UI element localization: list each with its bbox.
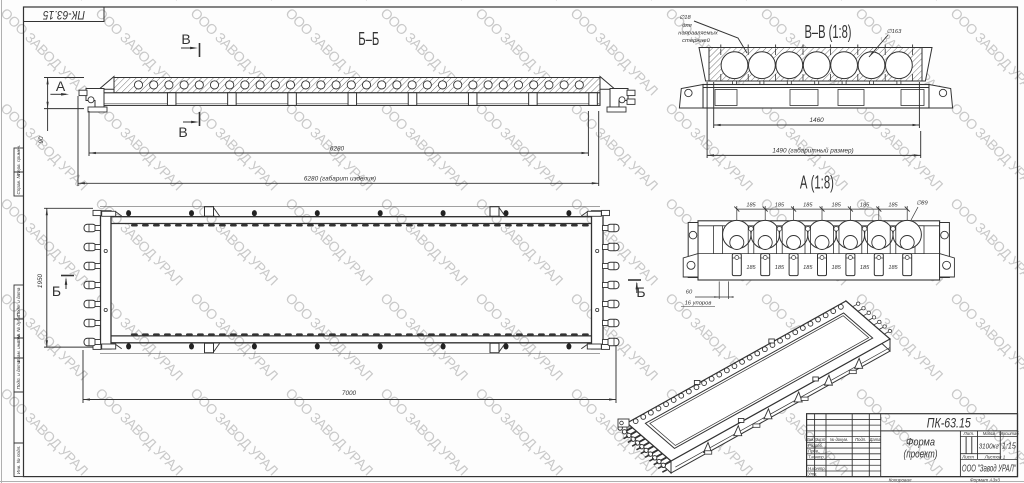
svg-text:∅18: ∅18 [679, 14, 691, 21]
svg-text:∅89: ∅89 [916, 200, 928, 207]
svg-text:ООО ЗАВОД УРАЛ: ООО ЗАВОД УРАЛ [473, 385, 567, 479]
svg-text:ООО ЗАВОД УРАЛ: ООО ЗАВОД УРАЛ [283, 0, 377, 3]
svg-text:ООО ЗАВОД УРАЛ: ООО ЗАВОД УРАЛ [663, 0, 757, 3]
svg-text:ООО ЗАВОД УРАЛ: ООО ЗАВОД УРАЛ [378, 0, 472, 3]
svg-text:185: 185 [860, 265, 870, 271]
svg-text:ООО ЗАВОД УРАЛ: ООО ЗАВОД УРАЛ [758, 0, 852, 3]
svg-text:185: 185 [888, 265, 898, 271]
svg-text:7000: 7000 [342, 390, 357, 397]
svg-text:Лист: Лист [814, 437, 826, 442]
svg-text:ООО ЗАВОД УРАЛ: ООО ЗАВОД УРАЛ [93, 385, 187, 479]
svg-text:(проект): (проект) [904, 449, 938, 461]
svg-text:ООО ЗАВОД УРАЛ: ООО ЗАВОД УРАЛ [378, 385, 472, 479]
svg-text:Лит.: Лит. [963, 431, 975, 436]
svg-text:Разраб.: Разраб. [808, 443, 823, 448]
svg-text:ООО "Завод УРАЛ": ООО "Завод УРАЛ" [962, 463, 1017, 475]
svg-text:60: 60 [686, 290, 693, 296]
svg-text:185: 185 [860, 202, 870, 208]
svg-text:ООО ЗАВОД УРАЛ: ООО ЗАВОД УРАЛ [473, 0, 567, 3]
svg-text:Б: Б [636, 284, 645, 300]
svg-text:ООО ЗАВОД УРАЛ: ООО ЗАВОД УРАЛ [93, 100, 187, 194]
svg-text:Листов 1: Листов 1 [984, 454, 1006, 459]
svg-text:Масштаб: Масштаб [999, 431, 1019, 436]
svg-text:ООО ЗАВОД УРАЛ: ООО ЗАВОД УРАЛ [188, 385, 282, 479]
svg-text:185: 185 [888, 202, 898, 208]
svg-text:90: 90 [38, 136, 45, 144]
svg-text:ООО ЗАВОД УРАЛ: ООО ЗАВОД УРАЛ [853, 385, 947, 479]
svg-text:Масса: Масса [983, 431, 996, 436]
svg-text:ООО ЗАВОД УРАЛ: ООО ЗАВОД УРАЛ [378, 195, 472, 289]
svg-text:ООО ЗАВОД УРАЛ: ООО ЗАВОД УРАЛ [948, 5, 1024, 99]
svg-text:Копировал: Копировал [889, 477, 912, 482]
svg-text:1460: 1460 [809, 117, 824, 124]
svg-text:185: 185 [775, 265, 785, 271]
svg-text:Н.контр.: Н.контр. [808, 466, 826, 471]
svg-text:ООО ЗАВОД УРАЛ: ООО ЗАВОД УРАЛ [948, 100, 1024, 194]
svg-text:Подп. и дата: Подп. и дата [16, 360, 21, 389]
svg-text:В–В (1:8): В–В (1:8) [805, 22, 852, 42]
svg-text:В: В [178, 124, 187, 140]
svg-text:ООО ЗАВОД УРАЛ: ООО ЗАВОД УРАЛ [948, 195, 1024, 289]
svg-text:1:15: 1:15 [1002, 442, 1016, 451]
svg-text:185: 185 [803, 265, 813, 271]
svg-text:стержней: стержней [682, 37, 711, 44]
svg-text:Подп.: Подп. [855, 437, 866, 442]
svg-text:ПК-63.15: ПК-63.15 [43, 8, 85, 22]
svg-text:1490 (габаритный размер): 1490 (габаритный размер) [772, 147, 853, 155]
svg-text:А (1:8): А (1:8) [800, 172, 834, 192]
svg-text:ООО ЗАВОД УРАЛ: ООО ЗАВОД УРАЛ [948, 290, 1024, 384]
svg-text:Пров.: Пров. [808, 449, 819, 454]
svg-text:Справ. №: Справ. № [16, 174, 21, 195]
svg-text:Подп. и дата: Подп. и дата [16, 287, 21, 316]
svg-text:Б: Б [52, 283, 61, 299]
svg-text:направляемых: направляемых [678, 31, 719, 37]
svg-text:3100кг: 3100кг [979, 442, 999, 451]
svg-text:Формат А3х3: Формат А3х3 [970, 477, 1000, 482]
svg-text:Т.контр.: Т.контр. [808, 454, 825, 459]
svg-text:Лист: Лист [961, 454, 974, 459]
svg-text:Б–Б: Б–Б [358, 29, 379, 49]
svg-text:ООО ЗАВОД УРАЛ: ООО ЗАВОД УРАЛ [188, 195, 282, 289]
svg-text:ООО ЗАВОД УРАЛ: ООО ЗАВОД УРАЛ [473, 290, 567, 384]
svg-text:ООО ЗАВОД УРАЛ: ООО ЗАВОД УРАЛ [188, 0, 282, 3]
svg-text:ООО ЗАВОД УРАЛ: ООО ЗАВОД УРАЛ [0, 0, 91, 3]
svg-text:1950: 1950 [37, 273, 44, 288]
svg-text:ООО ЗАВОД УРАЛ: ООО ЗАВОД УРАЛ [473, 100, 567, 194]
svg-text:В: В [181, 31, 190, 47]
svg-text:Форма: Форма [906, 437, 935, 449]
svg-text:ООО ЗАВОД УРАЛ: ООО ЗАВОД УРАЛ [568, 100, 662, 194]
svg-text:ООО ЗАВОД УРАЛ: ООО ЗАВОД УРАЛ [283, 195, 377, 289]
svg-text:185: 185 [832, 202, 842, 208]
svg-text:ООО ЗАВОД УРАЛ: ООО ЗАВОД УРАЛ [568, 195, 662, 289]
svg-text:16 упоров: 16 упоров [685, 301, 712, 307]
svg-text:ООО ЗАВОД УРАЛ: ООО ЗАВОД УРАЛ [283, 385, 377, 479]
svg-text:Утв.: Утв. [808, 472, 818, 477]
svg-text:185: 185 [775, 202, 785, 208]
svg-text:ООО ЗАВОД УРАЛ: ООО ЗАВОД УРАЛ [853, 0, 947, 3]
svg-text:185: 185 [746, 202, 756, 208]
svg-text:∅163: ∅163 [887, 28, 902, 35]
svg-text:ООО ЗАВОД УРАЛ: ООО ЗАВОД УРАЛ [663, 100, 757, 194]
svg-text:6280: 6280 [330, 146, 345, 153]
svg-text:ПК-63.15: ПК-63.15 [927, 415, 971, 431]
svg-text:ООО ЗАВОД УРАЛ: ООО ЗАВОД УРАЛ [93, 0, 187, 3]
svg-text:ООО ЗАВОД УРАЛ: ООО ЗАВОД УРАЛ [283, 290, 377, 384]
svg-text:Инв. № подл.: Инв. № подл. [16, 446, 21, 475]
svg-text:ООО ЗАВОД УРАЛ: ООО ЗАВОД УРАЛ [188, 290, 282, 384]
svg-text:Дата: Дата [868, 437, 881, 442]
svg-text:Перв. примен.: Перв. примен. [16, 145, 21, 176]
svg-text:ООО ЗАВОД УРАЛ: ООО ЗАВОД УРАЛ [378, 290, 472, 384]
svg-text:ООО ЗАВОД УРАЛ: ООО ЗАВОД УРАЛ [188, 100, 282, 194]
svg-text:Изм.: Изм. [806, 437, 815, 442]
svg-text:185: 185 [746, 265, 756, 271]
svg-text:ООО ЗАВОД УРАЛ: ООО ЗАВОД УРАЛ [568, 0, 662, 3]
svg-text:для: для [682, 23, 692, 29]
svg-text:ООО ЗАВОД УРАЛ: ООО ЗАВОД УРАЛ [948, 0, 1024, 3]
svg-text:ООО ЗАВОД УРАЛ: ООО ЗАВОД УРАЛ [378, 100, 472, 194]
svg-text:185: 185 [832, 265, 842, 271]
svg-text:А: А [56, 78, 66, 94]
svg-text:ООО ЗАВОД УРАЛ: ООО ЗАВОД УРАЛ [853, 100, 947, 194]
svg-text:6280 (габарит изделия): 6280 (габарит изделия) [304, 175, 376, 183]
svg-text:№ докум.: № докум. [830, 437, 848, 442]
svg-text:ООО ЗАВОД УРАЛ: ООО ЗАВОД УРАЛ [473, 195, 567, 289]
svg-text:185: 185 [803, 202, 813, 208]
